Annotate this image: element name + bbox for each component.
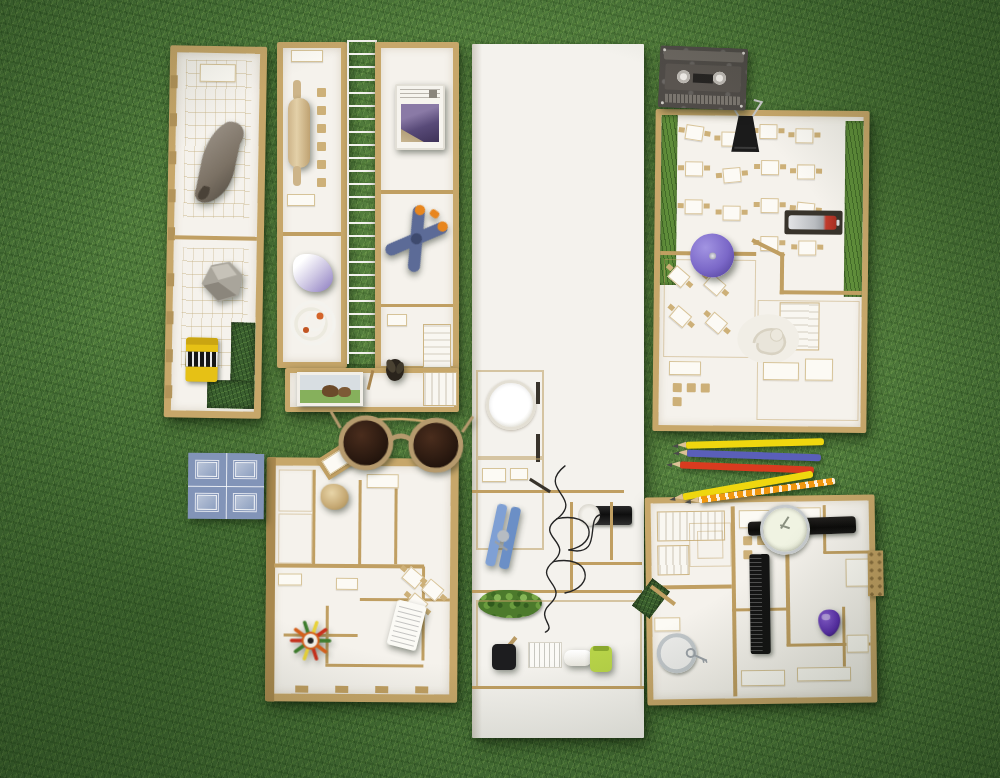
wall-notch — [415, 686, 428, 693]
sunglasses — [325, 405, 477, 474]
chair — [317, 106, 326, 115]
watch-case — [759, 504, 811, 556]
furniture — [846, 635, 868, 653]
feather-brooch — [289, 619, 331, 661]
restaurant-model — [652, 109, 869, 433]
furniture — [845, 558, 869, 586]
wall-notch — [375, 686, 388, 693]
colored-pencils — [672, 430, 858, 502]
chair — [317, 178, 326, 187]
mid-left-strip-model — [277, 42, 347, 368]
baby-sculpture — [735, 312, 802, 367]
room-outline — [278, 513, 312, 563]
white-bottle — [564, 650, 592, 666]
pencil-blue — [687, 450, 821, 462]
furniture — [336, 578, 358, 590]
staircase — [657, 545, 689, 575]
chair — [673, 397, 682, 406]
pencil-lead — [666, 462, 672, 466]
divider-wall — [381, 190, 453, 194]
wall-notch — [335, 686, 348, 693]
pencil-red — [680, 461, 814, 473]
battery — [788, 215, 836, 230]
screw — [663, 48, 666, 51]
wall-notch — [165, 385, 172, 398]
head-figurine — [320, 484, 348, 510]
grass-verge — [844, 121, 864, 297]
cassette-tape — [658, 45, 749, 111]
earbuds-coil — [285, 294, 341, 352]
screw — [661, 101, 664, 104]
film-cap — [186, 338, 218, 346]
wristwatch — [747, 502, 861, 554]
chair — [687, 383, 696, 392]
rolling-pin-handle — [293, 166, 301, 186]
tile-quadrant — [226, 486, 264, 519]
cassette-bottom-band — [664, 93, 740, 105]
divider-wall — [381, 304, 453, 307]
case-button — [429, 90, 437, 98]
furniture — [669, 361, 701, 375]
wall-notch — [171, 75, 178, 88]
photo-horse — [338, 387, 351, 397]
tile-quadrant — [188, 453, 226, 486]
furniture — [805, 358, 833, 380]
plan-wall — [394, 488, 398, 564]
tile-core — [197, 495, 217, 510]
table-with-chairs — [761, 160, 779, 175]
furniture — [200, 64, 236, 83]
comb-teeth — [749, 554, 763, 654]
ladder-strip — [347, 40, 377, 364]
chair — [701, 383, 710, 392]
pencil-lead — [672, 444, 678, 448]
furniture — [287, 194, 315, 206]
wall-notch — [166, 311, 173, 324]
wall-clock — [486, 380, 536, 430]
thread-tangle — [506, 460, 624, 636]
key — [685, 647, 711, 665]
wall-notch — [295, 686, 308, 693]
tile-core — [197, 462, 217, 477]
furniture — [291, 50, 323, 62]
chair — [317, 124, 326, 133]
model-apron — [285, 368, 459, 412]
yoyo-hub — [709, 252, 716, 259]
apartment-model — [265, 457, 459, 702]
center-tower-model — [472, 44, 644, 738]
tile-core — [235, 495, 255, 510]
chair — [673, 383, 682, 392]
rolling-pin — [288, 98, 310, 168]
divider-wall — [780, 252, 784, 294]
cassette-top-strip — [664, 49, 744, 62]
pencil-lead — [673, 451, 679, 455]
chair — [317, 160, 326, 169]
furniture — [278, 573, 302, 585]
divider-wall — [780, 290, 862, 295]
stone — [196, 256, 247, 307]
rolling-pin-handle — [293, 80, 301, 100]
left-strip-model — [164, 45, 267, 419]
middle-strip-group — [277, 40, 461, 414]
pencil-yellow — [686, 438, 824, 449]
wall-notch — [167, 273, 174, 286]
mid-right-strip-model — [375, 42, 459, 372]
table-with-chairs — [795, 128, 813, 143]
case-art — [401, 104, 439, 142]
furniture — [654, 617, 680, 631]
pencil-tip — [677, 442, 686, 448]
chair — [317, 88, 326, 97]
green-bottle — [590, 646, 612, 672]
case-art-sand — [401, 129, 424, 142]
stair-core — [697, 531, 723, 559]
blue-tile — [188, 453, 265, 520]
hand-mirror — [492, 644, 516, 670]
furniture — [387, 314, 407, 326]
horse-photo — [297, 372, 363, 406]
tile-quadrant — [226, 453, 264, 486]
furniture — [741, 670, 785, 687]
divider-wall — [283, 232, 341, 236]
bottle-cap — [593, 646, 609, 651]
white-crate — [528, 642, 562, 668]
screw — [742, 52, 745, 55]
film-band — [186, 352, 218, 368]
frame-edge — [265, 457, 276, 701]
pencil-tip — [678, 449, 687, 455]
tile-quadrant — [188, 486, 226, 519]
room-outline — [278, 469, 312, 511]
table-with-chairs — [798, 240, 816, 255]
pencil-lead — [685, 499, 691, 504]
table-with-chairs — [685, 199, 703, 214]
table-with-chairs — [685, 161, 703, 176]
plan-wall — [358, 480, 362, 566]
tape-window — [693, 74, 713, 84]
table-with-chairs — [761, 198, 779, 213]
wall-notch — [166, 349, 173, 362]
screw — [740, 105, 743, 108]
white-stairs — [423, 372, 457, 406]
dark-wall — [536, 382, 540, 404]
fly-figure — [383, 356, 407, 382]
grass-background — [0, 0, 1000, 778]
guitar-pick — [816, 607, 842, 639]
furniture — [367, 474, 399, 488]
comb — [749, 554, 770, 654]
yoyo — [690, 233, 734, 277]
photo-image — [300, 375, 360, 403]
furniture — [763, 362, 799, 380]
wall-notch — [169, 151, 176, 164]
wall-notch — [170, 113, 177, 126]
plan-wall — [472, 686, 644, 689]
chair — [317, 142, 326, 151]
table-with-chairs — [684, 124, 704, 142]
film-canister — [185, 338, 218, 383]
white-stairs — [423, 324, 451, 368]
pencil-tip — [671, 461, 680, 467]
tile-core — [235, 462, 255, 477]
cardboard-tab — [867, 550, 884, 596]
grass-cutout — [207, 380, 254, 409]
cassette-case — [395, 84, 445, 150]
table-with-chairs — [722, 167, 741, 184]
furniture — [797, 667, 851, 682]
table-with-chairs — [723, 206, 741, 221]
table-with-chairs — [797, 164, 815, 179]
photo-horse — [322, 385, 339, 397]
